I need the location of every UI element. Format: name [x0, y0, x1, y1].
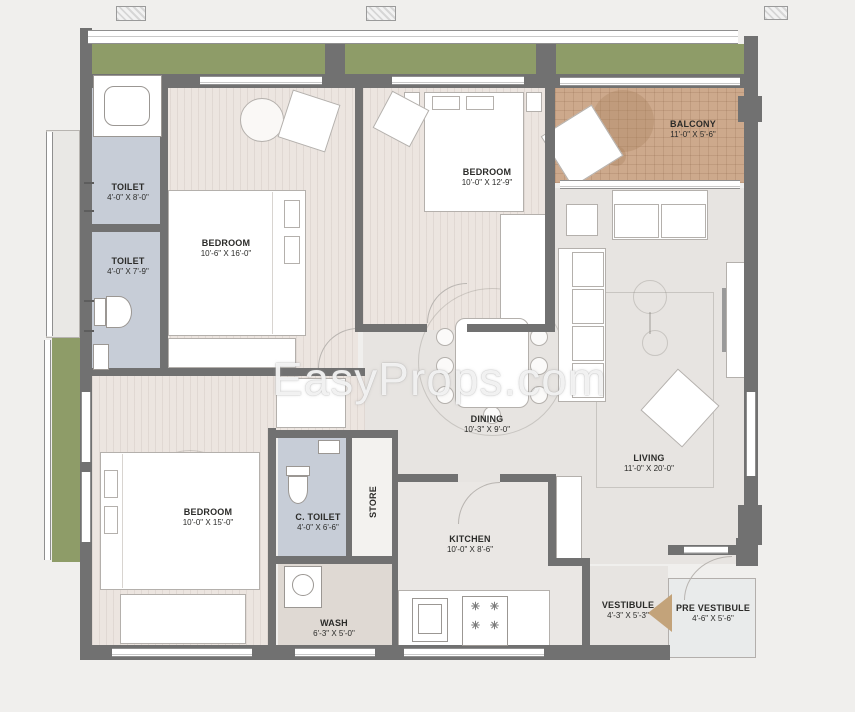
room-name: WASH — [313, 618, 355, 628]
room-label-toilet-top: TOILET 4'-0" X 8'-0" — [107, 182, 149, 202]
side-table — [566, 204, 598, 236]
window-top-band — [88, 30, 738, 44]
dresser — [120, 594, 246, 644]
room-dims: 11'-0" X 20'-0" — [624, 464, 674, 473]
sofa-cushion — [661, 204, 706, 238]
room-name: TOILET — [107, 182, 149, 192]
wardrobe — [500, 214, 546, 328]
room-label-c-toilet: C. TOILET 4'-0" X 6'-6" — [295, 512, 340, 532]
washbasin-icon — [93, 344, 109, 370]
room-name: STORE — [368, 486, 378, 518]
tv-icon — [722, 288, 726, 352]
sofa-cushion — [572, 252, 604, 287]
wall-vestibule-bottom — [582, 647, 668, 660]
wall-ctoilet-store — [346, 438, 352, 558]
hob-burners: ✳ ✳ ✳ ✳ — [466, 602, 504, 640]
room-label-bedroom-top-mid: BEDROOM 10'-0" X 12'-9" — [462, 167, 513, 187]
room-name: BEDROOM — [183, 507, 234, 517]
room-name: KITCHEN — [447, 534, 493, 544]
bed-fold-line — [122, 454, 123, 588]
window-planter-left — [44, 340, 51, 560]
room-label-vestibule: VESTIBULE 4'-3" X 5'-3" — [602, 600, 654, 620]
washing-machine-drum — [292, 574, 314, 596]
ac-duct-hatch-icon — [116, 6, 146, 21]
room-dims: 10'-3" X 9'-0" — [464, 425, 510, 434]
burner-icon: ✳ — [466, 602, 485, 621]
room-label-kitchen: KITCHEN 10'-0" X 8'-6" — [447, 534, 493, 554]
room-dims: 4'-0" X 8'-0" — [107, 193, 149, 202]
window-right-living — [746, 392, 756, 476]
ac-duct-hatch-icon — [366, 6, 396, 21]
watermark: EasyProps.com — [272, 352, 607, 406]
room-name: LIVING — [624, 453, 674, 463]
room-dims: 10'-0" X 8'-6" — [447, 545, 493, 554]
room-dims: 4'-0" X 6'-6" — [295, 523, 340, 532]
wall-block — [736, 538, 758, 566]
room-label-store: STORE — [368, 486, 378, 518]
window-bedroom2 — [392, 76, 524, 85]
room-dims: 10'-0" X 15'-0" — [183, 518, 234, 527]
wall-bedroom3-right — [268, 428, 276, 647]
room-dims: 4'-6" X 5'-6" — [676, 614, 750, 623]
room-label-balcony: BALCONY 11'-0" X 5'-6" — [670, 119, 716, 139]
wall-block — [738, 96, 762, 122]
room-name: PRE VESTIBULE — [676, 603, 750, 613]
room-label-dining: DINING 10'-3" X 9'-0" — [464, 414, 510, 434]
room-name: BALCONY — [670, 119, 716, 129]
wc-icon — [288, 476, 308, 504]
bed — [424, 92, 524, 212]
tap-icon — [84, 210, 94, 212]
room-label-wash: WASH 6'-3" X 5'-0" — [313, 618, 355, 638]
room-label-living: LIVING 11'-0" X 20'-0" — [624, 453, 674, 473]
pillow — [284, 200, 300, 228]
pillow — [284, 236, 300, 264]
ac-duct-hatch-icon — [764, 6, 788, 20]
sofa-cushion — [572, 289, 604, 324]
pillow — [466, 96, 494, 110]
bed-fold-line — [272, 192, 273, 334]
tap-icon — [84, 182, 94, 184]
wall-block — [744, 36, 758, 88]
wall-kitchen-top — [500, 474, 552, 482]
room-dims: 10'-6" X 16'-0" — [201, 249, 252, 258]
entry-door-opening — [684, 546, 728, 554]
burner-icon: ✳ — [485, 621, 504, 640]
wall-ctoilet-top — [273, 430, 398, 438]
room-floor-c-toilet — [278, 438, 348, 558]
tap-icon — [84, 300, 94, 302]
room-name: TOILET — [107, 256, 149, 266]
burner-icon: ✳ — [485, 602, 504, 621]
wall-vestibule-left — [582, 558, 590, 647]
planter-top — [88, 44, 746, 74]
room-name: DINING — [464, 414, 510, 424]
room-label-toilet-mid: TOILET 4'-0" X 7'-9" — [107, 256, 149, 276]
room-label-bedroom-top-left: BEDROOM 10'-6" X 16'-0" — [201, 238, 252, 258]
wall-bedroom2-living — [545, 74, 555, 332]
wc-tank — [286, 466, 310, 476]
wall-bedroom1-bedroom2 — [355, 74, 363, 332]
wall-kitchen-top — [398, 474, 458, 482]
wall-wash-top — [273, 556, 394, 564]
window-bottom-kitchen — [404, 648, 544, 657]
sink-basin — [418, 604, 442, 634]
room-name: VESTIBULE — [602, 600, 654, 610]
room-dims: 4'-3" X 5'-3" — [602, 611, 654, 620]
wall-store-kitchen — [392, 438, 398, 647]
dining-chair — [436, 328, 454, 346]
planter-left — [52, 338, 82, 562]
window-balcony-living — [560, 180, 740, 189]
wc-icon — [106, 296, 132, 328]
window-bottom-wash — [295, 648, 375, 657]
window-balcony-top — [560, 77, 740, 86]
burner-icon: ✳ — [466, 621, 485, 640]
wc-tank — [94, 298, 106, 326]
washbasin-icon — [318, 440, 340, 454]
floor-lamp-base — [642, 330, 668, 356]
room-dims: 11'-0" X 5'-6" — [670, 130, 716, 139]
cabinet — [556, 476, 582, 564]
pillow — [104, 470, 118, 498]
sofa-cushion — [614, 204, 659, 238]
window-bedroom3-b — [81, 472, 91, 542]
pillow — [104, 506, 118, 534]
wall-right — [744, 88, 758, 564]
wall-kitchen-living — [548, 474, 556, 566]
wall-bedroom2-bottom — [467, 324, 547, 332]
floor-plan: ✳ ✳ ✳ ✳ TOILET 4'-0" X 8'-0" TOILET 4'-0… — [0, 0, 855, 712]
room-label-bedroom-bottom-left: BEDROOM 10'-0" X 15'-0" — [183, 507, 234, 527]
wall-toilet-divider — [92, 224, 160, 232]
tap-icon — [84, 330, 94, 332]
room-dims: 4'-0" X 7'-9" — [107, 267, 149, 276]
washbasin-icon — [104, 86, 150, 126]
tv-unit — [726, 262, 746, 378]
wall-block — [325, 40, 345, 88]
window-ledge-left — [46, 132, 53, 336]
room-label-pre-vestibule: PRE VESTIBULE 4'-6" X 5'-6" — [676, 603, 750, 623]
room-dims: 10'-0" X 12'-9" — [462, 178, 513, 187]
window-bedroom3-a — [81, 392, 91, 462]
window-bottom-bedroom3 — [112, 648, 252, 657]
wall-bedroom2-bottom — [363, 324, 427, 332]
room-name: C. TOILET — [295, 512, 340, 522]
room-name: BEDROOM — [462, 167, 513, 177]
room-dims: 6'-3" X 5'-0" — [313, 629, 355, 638]
room-name: BEDROOM — [201, 238, 252, 248]
window-bedroom1 — [200, 76, 322, 85]
nightstand — [526, 92, 542, 112]
bed — [100, 452, 260, 590]
pillow — [432, 96, 460, 110]
floor-lamp-icon — [633, 280, 667, 314]
